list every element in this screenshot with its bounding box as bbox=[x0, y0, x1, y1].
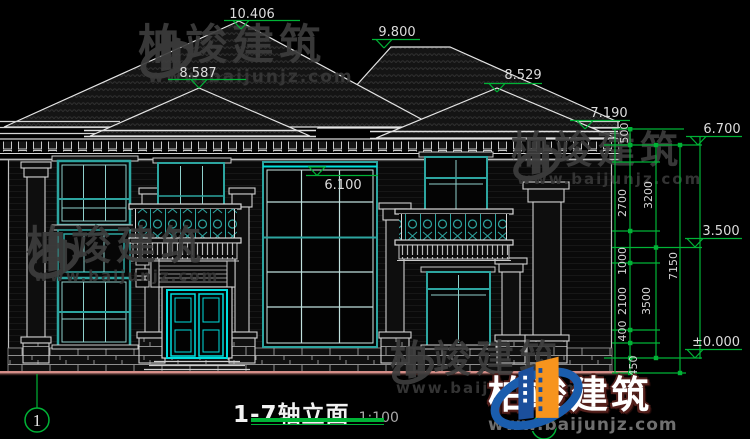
dim-label: 3500 bbox=[640, 287, 653, 315]
dim-label: 1000 bbox=[616, 247, 629, 275]
dim-label: 500 bbox=[618, 123, 631, 144]
title-underline-thin bbox=[251, 424, 384, 425]
brand-logo-icon bbox=[484, 348, 594, 436]
elevation-label: 7.190 bbox=[590, 106, 627, 121]
brand-footer: 柏竣建筑 www.baijunjz.com bbox=[484, 348, 678, 434]
dim-label: 2700 bbox=[616, 189, 629, 217]
elevation-label: 6.100 bbox=[324, 178, 361, 193]
cad-elevation-screenshot: 柏竣建筑 www.baijunjz.com 柏竣建筑 www.baijunjz.… bbox=[0, 0, 750, 439]
elevation-label: 8.587 bbox=[179, 66, 216, 81]
elevation-label: ±0.000 bbox=[692, 335, 740, 350]
dim-label: 3200 bbox=[642, 181, 655, 209]
elevation-label: 3.500 bbox=[702, 224, 739, 239]
axis-bubble-1-label: 1 bbox=[33, 411, 42, 430]
elevation-label: 10.406 bbox=[229, 7, 275, 22]
dim-label: 2100 bbox=[616, 287, 629, 315]
elevation-label: 6.700 bbox=[703, 122, 740, 137]
dim-label: 7150 bbox=[667, 252, 680, 280]
chain-dimension-labels: 500 2700 1000 2100 400 450 3200 3500 715… bbox=[616, 123, 680, 377]
dimension-lines bbox=[168, 21, 742, 374]
title-underline bbox=[251, 418, 384, 422]
elevation-label: 8.529 bbox=[504, 68, 541, 83]
elevation-label: 9.800 bbox=[378, 25, 415, 40]
dim-label: 400 bbox=[616, 321, 629, 342]
dimension-ticks bbox=[628, 127, 682, 375]
